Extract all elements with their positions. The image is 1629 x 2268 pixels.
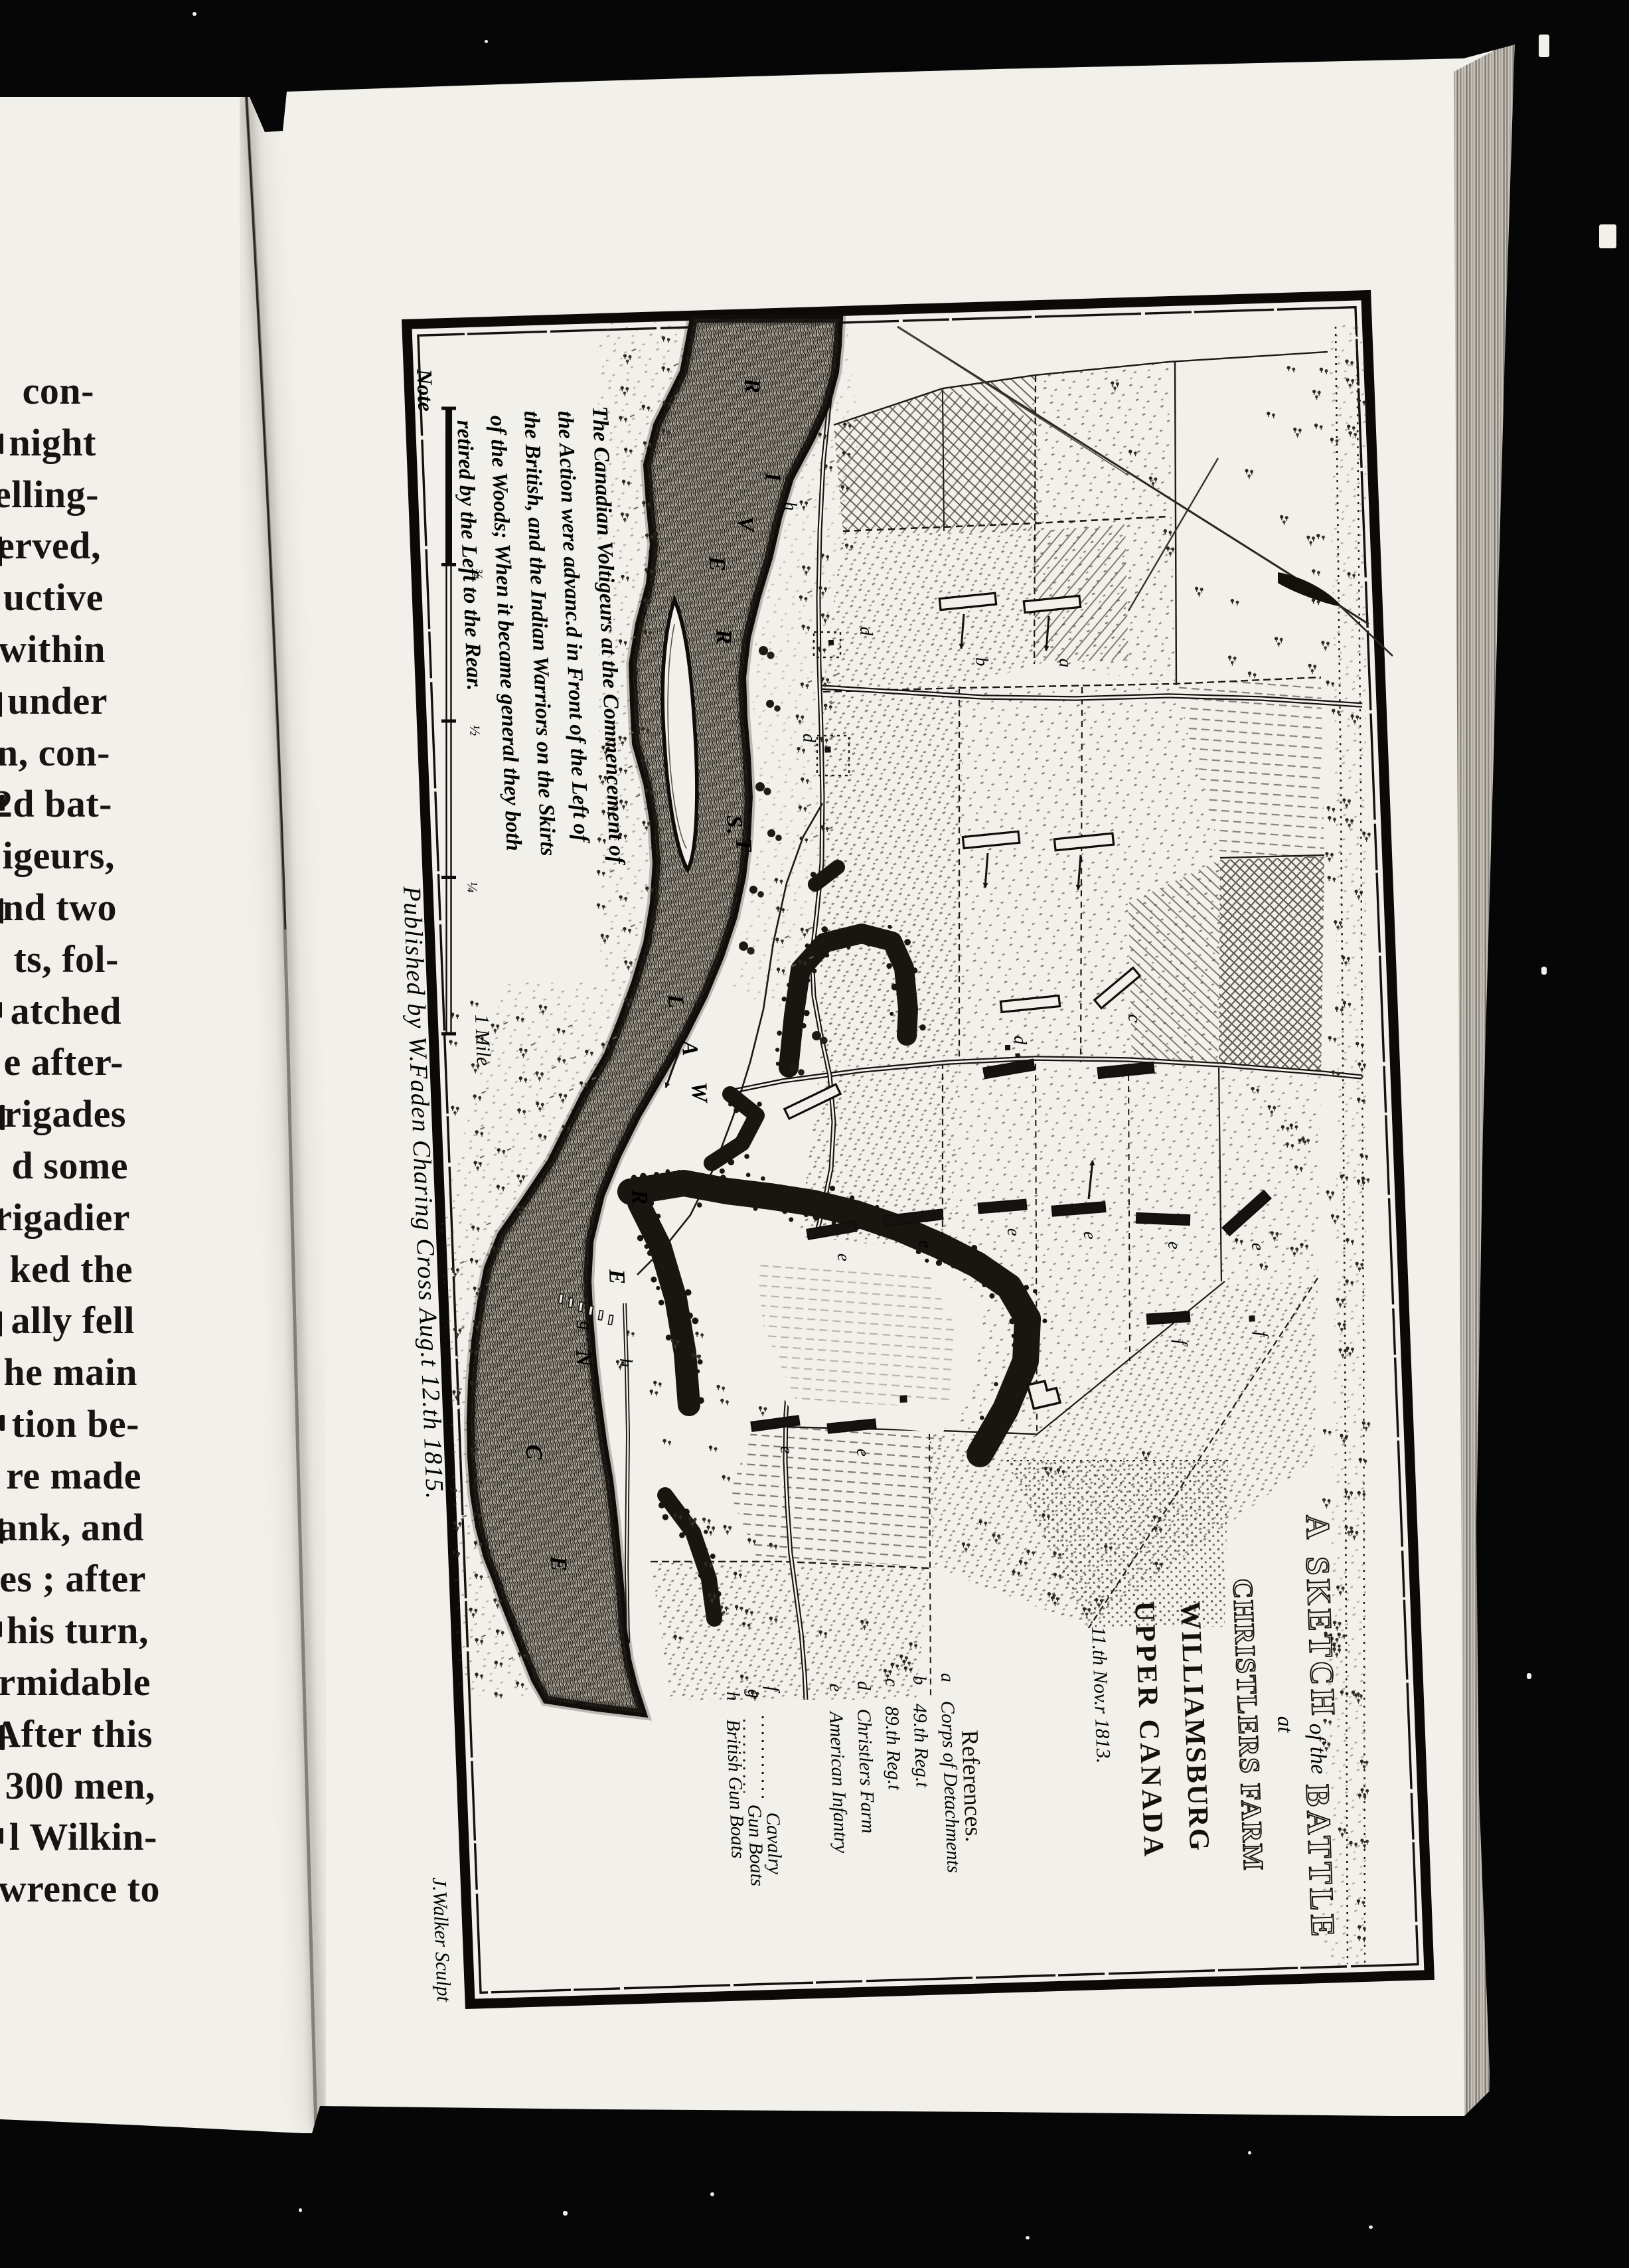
svg-text:E: E [704, 555, 730, 573]
svg-text:within: within [0, 627, 106, 671]
svg-text:g: g [743, 1688, 765, 1698]
svg-text:e after-: e after- [3, 1040, 123, 1084]
svg-text:es ; after: es ; after [0, 1557, 146, 1600]
svg-text:¼: ¼ [464, 881, 481, 892]
svg-text:After this: After this [0, 1712, 153, 1755]
svg-text:L: L [663, 993, 688, 1010]
svg-text:49.th Reg.t: 49.th Reg.t [909, 1703, 933, 1788]
svg-text:e: e [853, 1448, 873, 1457]
svg-text:e: e [1248, 1242, 1268, 1251]
svg-text:1 Mile: 1 Mile [471, 1014, 495, 1066]
svg-text:BATTLE: BATTLE [1299, 1784, 1342, 1941]
svg-text:ank, and: ank, and [0, 1506, 144, 1549]
svg-text:W: W [686, 1082, 712, 1104]
svg-text:d some: d some [12, 1144, 128, 1187]
svg-text:c: c [881, 1678, 901, 1687]
svg-text:R: R [711, 628, 736, 646]
svg-text:2d bat-: 2d bat- [0, 782, 112, 825]
svg-text:I: I [760, 471, 785, 483]
svg-text:C: C [521, 1444, 546, 1461]
svg-text:h: h [616, 1358, 636, 1367]
svg-text:R: R [627, 1188, 652, 1206]
svg-text:rigadier: rigadier [0, 1196, 130, 1239]
svg-text:N: N [571, 1349, 596, 1368]
svg-text:re made: re made [6, 1454, 141, 1497]
svg-text:A: A [677, 1039, 702, 1058]
svg-text:d: d [799, 733, 820, 743]
svg-text:tion be-: tion be- [12, 1402, 140, 1445]
svg-text:under: under [7, 679, 108, 722]
svg-text:elling-: elling- [0, 473, 99, 516]
svg-text:d: d [856, 626, 877, 636]
svg-text:e: e [834, 1253, 854, 1261]
svg-text:S.: S. [722, 815, 747, 837]
svg-text:l Wilkin-: l Wilkin- [9, 1815, 157, 1858]
svg-text:erved,: erved, [0, 524, 101, 567]
svg-text:SKETCH: SKETCH [1299, 1556, 1342, 1720]
svg-text:e: e [915, 1240, 935, 1248]
svg-text:at: at [1273, 1716, 1298, 1734]
svg-text:a: a [1055, 658, 1075, 667]
svg-text:R: R [739, 377, 765, 395]
svg-text:b: b [972, 657, 992, 666]
svg-text:ally fell: ally fell [11, 1299, 135, 1342]
svg-text:d: d [853, 1680, 874, 1691]
svg-text:n, con-: n, con- [0, 731, 110, 774]
svg-text:T: T [731, 837, 756, 853]
svg-text:rmidable: rmidable [0, 1660, 151, 1704]
svg-text:a: a [937, 1672, 958, 1682]
svg-text:e: e [1004, 1228, 1024, 1236]
svg-text:E: E [604, 1268, 629, 1286]
svg-text:con-: con- [23, 369, 94, 412]
svg-text:300 men,: 300 men, [5, 1764, 155, 1807]
svg-text:ked the: ked the [9, 1248, 133, 1291]
svg-text:he main: he main [3, 1350, 137, 1394]
svg-text:uctive: uctive [3, 576, 104, 619]
svg-text:g: g [576, 1321, 596, 1330]
svg-text:ts, fol-: ts, fol- [13, 937, 119, 981]
svg-text:b: b [909, 1675, 930, 1685]
svg-text:Note: Note [412, 368, 437, 412]
svg-text:rigades: rigades [4, 1092, 126, 1135]
svg-text:night: night [9, 421, 97, 464]
svg-text:c: c [1125, 1014, 1144, 1022]
svg-text:wrence to: wrence to [0, 1867, 160, 1910]
svg-text:igeurs,: igeurs, [3, 834, 115, 877]
svg-text:E: E [546, 1555, 571, 1573]
svg-text:e: e [777, 1445, 797, 1454]
svg-text:e: e [1164, 1241, 1184, 1250]
svg-text:e: e [825, 1683, 846, 1692]
svg-text:nd two: nd two [3, 886, 117, 929]
svg-text:89.th Reg.t: 89.th Reg.t [881, 1706, 905, 1791]
svg-text:½: ½ [467, 724, 484, 736]
svg-text:V: V [733, 516, 758, 533]
svg-text:d: d [1010, 1035, 1031, 1045]
svg-text:h: h [722, 1691, 743, 1701]
svg-text:of the: of the [1304, 1723, 1331, 1775]
svg-text:his turn,: his turn, [7, 1609, 149, 1652]
svg-text:J.Walker Sculpt: J.Walker Sculpt [428, 1877, 455, 2002]
svg-text:atched: atched [11, 989, 121, 1032]
svg-text:A: A [1299, 1514, 1337, 1542]
svg-text:e: e [1080, 1231, 1100, 1240]
svg-text:h: h [781, 501, 801, 511]
